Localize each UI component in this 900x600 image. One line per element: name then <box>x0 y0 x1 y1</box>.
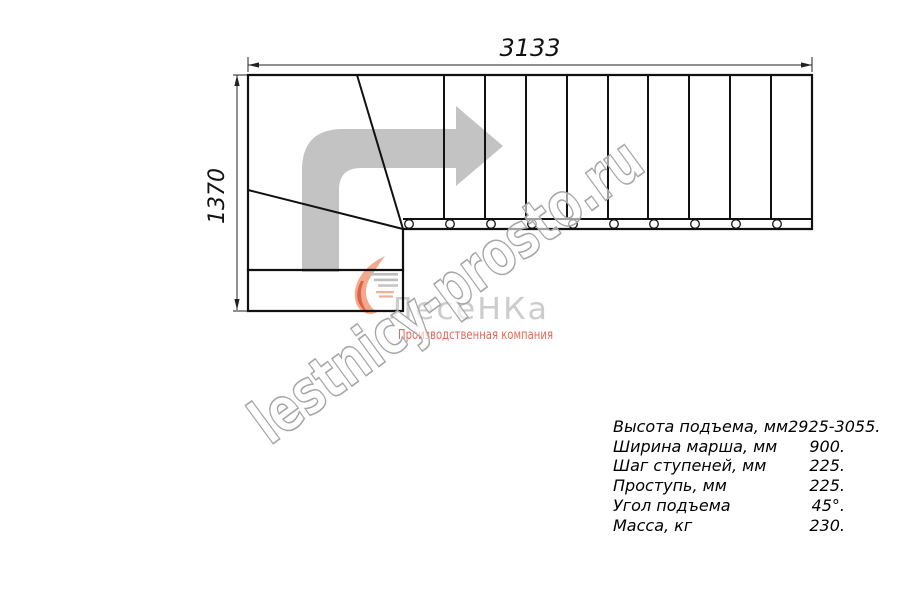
spec-value: 2925-3055. <box>788 417 880 437</box>
site-watermark: lestnicy-prosto.ru <box>236 123 657 458</box>
spec-row: Угол подъема 45°. <box>613 496 845 516</box>
spec-label: Проступь, мм <box>613 476 727 496</box>
spec-row: Проступь, мм 225. <box>613 476 845 496</box>
spec-value: 900. <box>809 437 845 457</box>
spec-label: Масса, кг <box>613 516 692 536</box>
width-dimension-label: 3133 <box>499 34 560 62</box>
spec-row: Ширина марша, мм 900. <box>613 437 845 457</box>
spec-value: 230. <box>809 516 845 536</box>
spec-row: Высота подъема, мм 2925-3055. <box>613 417 845 437</box>
spec-row: Масса, кг 230. <box>613 516 845 536</box>
spec-label: Ширина марша, мм <box>613 437 777 457</box>
spec-label: Шаг ступеней, мм <box>613 456 766 476</box>
spec-label: Высота подъема, мм <box>613 417 788 437</box>
stair-drawing-page: ЛесеНКа Производственная компания <box>0 0 900 600</box>
spec-value: 225. <box>809 456 845 476</box>
spec-label: Угол подъема <box>613 496 731 516</box>
spec-value: 45°. <box>812 496 845 516</box>
height-dimension-label: 1370 <box>205 168 230 224</box>
spec-table: Высота подъема, мм 2925-3055. Ширина мар… <box>613 417 845 535</box>
spec-value: 225. <box>809 476 845 496</box>
width-dimension: 3133 <box>248 34 812 72</box>
height-dimension: 1370 <box>205 75 247 311</box>
spec-row: Шаг ступеней, мм 225. <box>613 456 845 476</box>
